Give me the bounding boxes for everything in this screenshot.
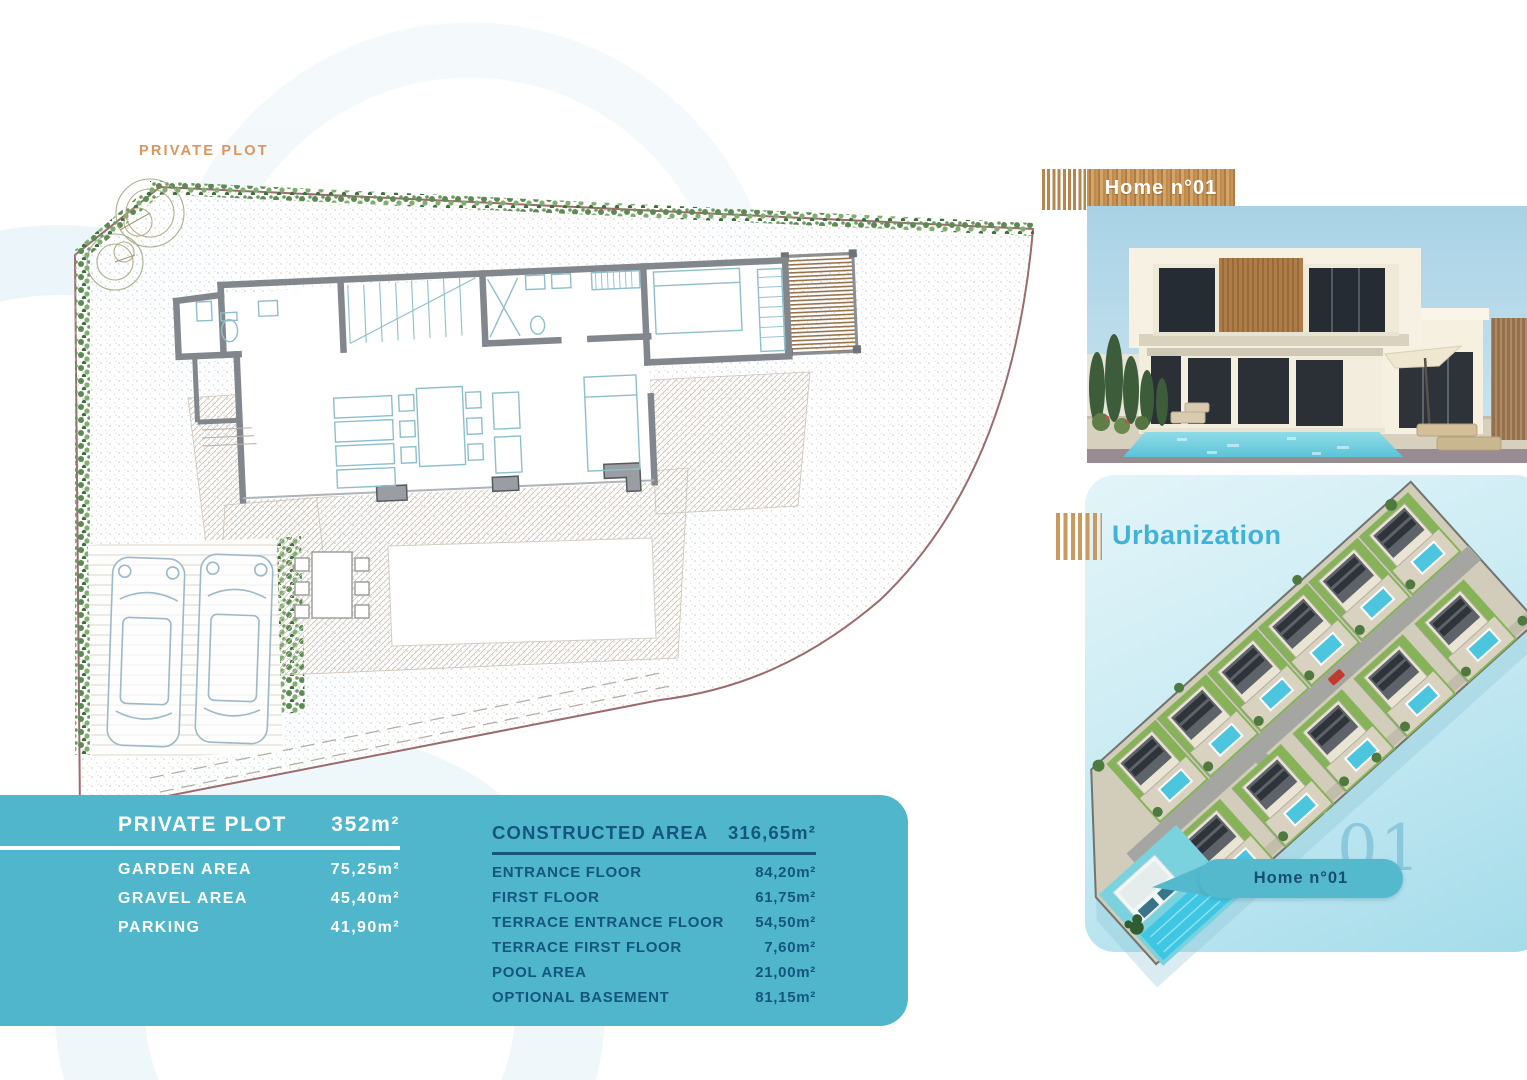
constructed-area-table: CONSTRUCTED AREA 316,65m² ENTRANCE FLOOR… bbox=[492, 822, 816, 1006]
home-pill-badge: Home n°01 bbox=[1199, 859, 1403, 898]
constructed-table-title: CONSTRUCTED AREA bbox=[492, 822, 708, 844]
table-row: OPTIONAL BASEMENT 81,15m² bbox=[492, 989, 816, 1006]
table-row: GRAVEL AREA 45,40m² bbox=[118, 890, 400, 908]
constructed-table-rule bbox=[492, 852, 816, 855]
constructed-table-total: 316,65m² bbox=[728, 822, 816, 844]
brochure-page: PRIVATE PLOT Home n°01 bbox=[0, 0, 1527, 1080]
private-plot-table: PRIVATE PLOT 352m² GARDEN AREA 75,25m² G… bbox=[118, 813, 400, 937]
plot-table-total: 352m² bbox=[331, 813, 400, 837]
table-row: PARKING 41,90m² bbox=[118, 919, 400, 937]
table-row: FIRST FLOOR 61,75m² bbox=[492, 889, 816, 906]
table-row: ENTRANCE FLOOR 84,20m² bbox=[492, 864, 816, 881]
home-pill-label: Home n°01 bbox=[1254, 869, 1348, 888]
table-row: GARDEN AREA 75,25m² bbox=[118, 861, 400, 879]
table-row: TERRACE FIRST FLOOR 7,60m² bbox=[492, 939, 816, 956]
plot-table-title: PRIVATE PLOT bbox=[118, 813, 287, 837]
table-row: POOL AREA 21,00m² bbox=[492, 964, 816, 981]
table-row: TERRACE ENTRANCE FLOOR 54,50m² bbox=[492, 914, 816, 931]
